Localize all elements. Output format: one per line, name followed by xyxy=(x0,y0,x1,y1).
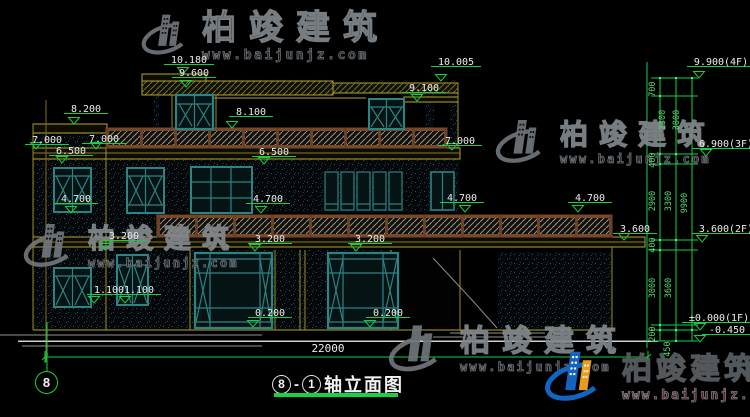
chain-dimension: 3000 xyxy=(672,110,682,130)
level-marker: 4.700 xyxy=(246,194,290,213)
chain-dimension: 700 xyxy=(648,81,658,96)
level-label: 9.100 xyxy=(409,83,439,94)
level-marker: 4.700 xyxy=(440,193,484,212)
chain-dimension: 400 xyxy=(648,237,658,252)
level-label: 3.600 xyxy=(620,224,650,235)
level-label: 4.700 xyxy=(447,193,477,204)
level-label: 10.180 xyxy=(171,55,207,66)
title-dash: - xyxy=(294,376,299,393)
level-marker: 0.200 xyxy=(248,308,293,327)
level-label: 3.600(2F) xyxy=(699,224,750,235)
level-label: -0.450 xyxy=(709,325,745,336)
level-marker: 7.000 xyxy=(438,136,482,150)
level-label: 1.100 xyxy=(124,285,154,296)
axis-end-bubble: 1 xyxy=(302,375,321,394)
chain-dimension: 450 xyxy=(663,341,673,356)
axis-start-bubble: 8 xyxy=(272,375,291,394)
level-label: 3.200 xyxy=(255,234,285,245)
level-marker: 7.000 xyxy=(82,134,126,149)
level-label: 3.200 xyxy=(109,231,139,242)
level-marker: 8.200 xyxy=(64,104,108,124)
level-label: 0.200 xyxy=(255,308,285,319)
level-marker: 6.500 xyxy=(49,146,93,163)
level-marker: 3.200 xyxy=(248,234,292,251)
level-label: 9.900(4F) xyxy=(694,57,748,68)
level-label: 0.200 xyxy=(373,308,403,319)
chain-dimension: 400 xyxy=(648,152,658,167)
chain-dimension: 3300 xyxy=(664,191,674,211)
level-marker: -0.450 xyxy=(695,325,750,342)
chain-dimension: 9900 xyxy=(680,193,690,213)
level-marker: 0.200 xyxy=(365,308,411,327)
level-marker: 4.700 xyxy=(568,193,612,212)
level-label: 9.600 xyxy=(179,68,209,79)
level-marker: 3.600(2F) xyxy=(692,224,750,242)
chain-dimension: 2900 xyxy=(648,191,658,211)
level-label: 7.000 xyxy=(32,135,62,146)
level-label: ±0.000(1F) xyxy=(689,313,749,324)
title-underline xyxy=(274,393,398,397)
level-label: 6.500 xyxy=(56,146,86,157)
chain-dimension: 2300 xyxy=(658,110,668,130)
level-marker: 3.200 xyxy=(100,231,147,250)
level-label: 4.700 xyxy=(253,194,283,205)
cad-canvas: 柏竣建筑 www.baijunjz.com 柏竣建筑 www.baijunjz.… xyxy=(0,0,750,417)
level-marker: 9.100 xyxy=(402,83,446,101)
level-label: 10.005 xyxy=(438,57,474,68)
level-label: 6.900(3F) xyxy=(699,139,750,150)
level-marker: 8.100 xyxy=(227,107,274,128)
level-label: 4.700 xyxy=(575,193,605,204)
level-marker: 9.900(4F) xyxy=(687,57,750,78)
level-label: 7.000 xyxy=(445,136,475,147)
level-marker: 10.005 xyxy=(431,57,481,81)
level-marker: 4.700 xyxy=(54,194,98,213)
level-label: 7.000 xyxy=(89,134,119,145)
level-label: 6.500 xyxy=(259,147,289,158)
level-label: 4.700 xyxy=(61,194,91,205)
level-marker: 6.500 xyxy=(252,147,296,164)
chain-dimension: 3000 xyxy=(648,278,658,298)
chain-dimension: 200 xyxy=(648,326,658,341)
chain-dimension: 3600 xyxy=(664,278,674,298)
overall-dimension: 22000 xyxy=(311,342,344,355)
level-label: 8.100 xyxy=(236,107,266,118)
level-marker: 9.600 xyxy=(172,68,216,87)
level-marker: 3.200 xyxy=(348,234,392,251)
dimension-labels-layer: 10.1809.60010.0059.1008.2008.1007.0007.0… xyxy=(0,0,750,417)
level-label: 3.200 xyxy=(355,234,385,245)
level-marker: 6.900(3F) xyxy=(692,139,750,156)
level-label: 8.200 xyxy=(71,104,101,115)
level-marker: 1.100 xyxy=(117,285,161,303)
axis-grid-bubble: 8 xyxy=(35,371,58,394)
